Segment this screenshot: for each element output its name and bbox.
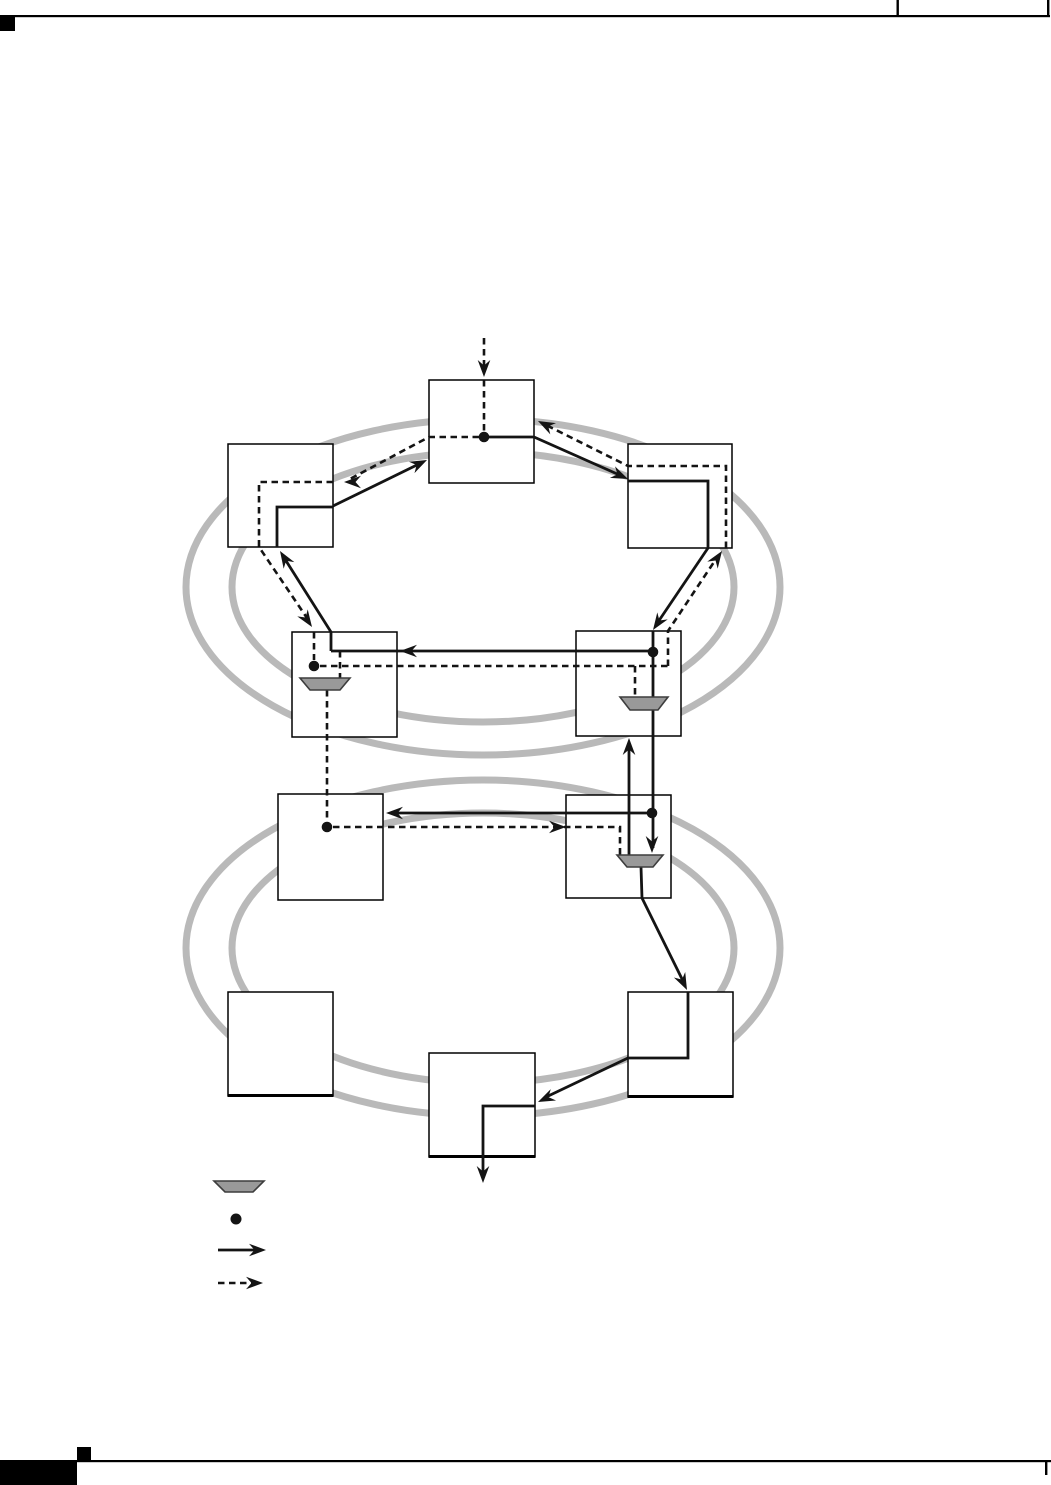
trapezoid-icon: [300, 678, 350, 690]
nodes: [228, 380, 733, 1157]
arrowhead: [246, 1277, 263, 1290]
arrowhead: [275, 548, 295, 569]
junction-dot: [647, 808, 658, 819]
legend-item-junction-dot: [231, 1214, 242, 1225]
footer-tick-right: [1045, 1462, 1047, 1475]
arrowhead: [535, 1089, 556, 1108]
bottom-right-node: [628, 992, 733, 1097]
junction-dot: [309, 661, 320, 672]
junction-dot-icon: [231, 1214, 242, 1225]
middle-right-node: [576, 631, 681, 736]
top-node: [429, 380, 534, 483]
arrowhead: [297, 609, 317, 630]
legend-item-dashed-arrow: [246, 1277, 263, 1290]
header-tick-right: [1047, 0, 1049, 17]
figure-page: [0, 0, 1051, 1485]
legend: [214, 1181, 266, 1289]
header-tick-mid: [897, 0, 899, 16]
header-left-square: [0, 16, 15, 31]
trapezoid-icon: [214, 1181, 264, 1192]
junction-dot: [479, 432, 490, 443]
path-upperright-to-middleright: [656, 548, 708, 625]
path-upperleft-to-top: [333, 462, 423, 506]
bottom-left-node: [228, 992, 333, 1096]
footer-small-square: [77, 1447, 91, 1460]
junction-dot: [648, 647, 659, 658]
lower-left-node: [278, 794, 383, 900]
footer-rule: [77, 1460, 1051, 1462]
page-frame: [0, 0, 1051, 1485]
upper-left-node: [228, 444, 333, 547]
legend-item-trapezoid: [214, 1181, 264, 1192]
arrowhead: [674, 972, 693, 993]
upper-right-node: [628, 444, 732, 548]
legend-item-solid-arrow: [218, 1244, 266, 1257]
junction-dot: [322, 822, 333, 833]
figure-canvas: [0, 0, 1051, 1485]
header-rule: [0, 15, 1050, 17]
footer-page-block: [0, 1460, 77, 1485]
